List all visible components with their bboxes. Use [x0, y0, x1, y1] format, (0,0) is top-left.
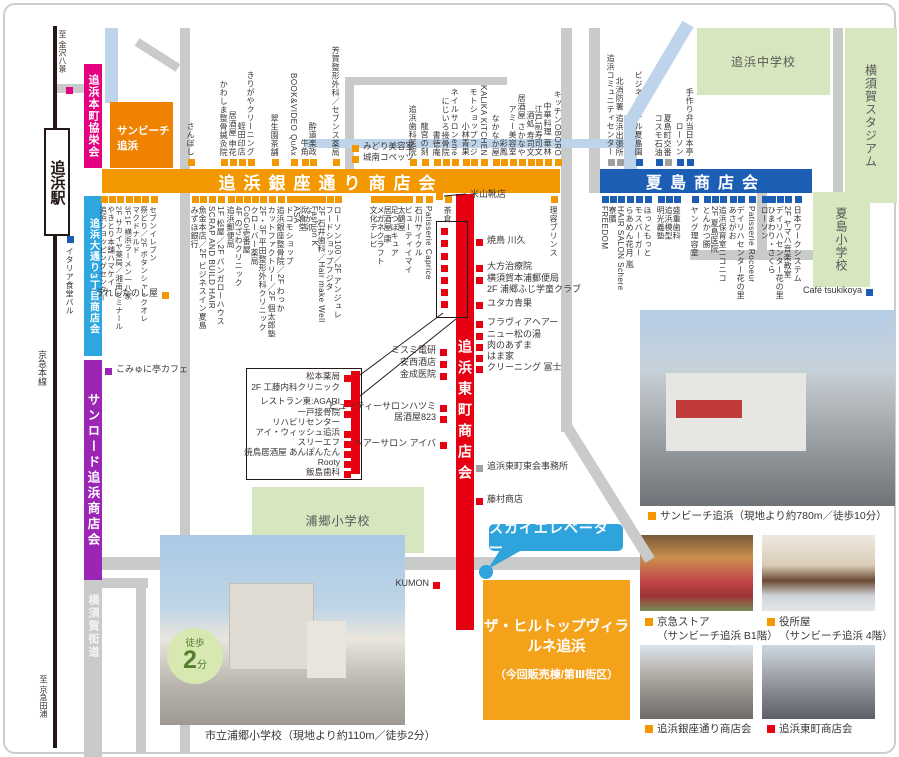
shop-label: Rooty	[318, 458, 340, 467]
shop-marker	[333, 159, 340, 166]
shop-label: コスモ石油	[654, 114, 662, 157]
shop-marker	[476, 321, 483, 328]
banner-sunroad: サンロード追浜商店会	[84, 360, 102, 580]
area-label: 浦郷小学校	[305, 512, 370, 529]
shop-marker	[627, 196, 634, 203]
shop-label: 北消防署 追浜出張所	[615, 77, 623, 156]
shop-label: にじいろ接骨院	[441, 97, 449, 157]
road	[347, 77, 507, 85]
shop-label: 酔道楽政	[308, 122, 316, 156]
shop-marker	[66, 87, 73, 94]
shop-label: 1F 松屋／2F バンガローハウス	[216, 206, 224, 326]
shop-marker	[785, 196, 792, 203]
shop-label: 4F のざわクリニック	[234, 206, 242, 287]
shop-label: 追浜銀座整骨院／2F わっか	[276, 206, 284, 313]
shop-marker	[476, 366, 483, 373]
shop-marker	[399, 196, 406, 203]
shop-marker	[720, 196, 727, 203]
shop-marker	[260, 196, 267, 203]
shop-marker	[463, 159, 470, 166]
shop-marker	[310, 159, 317, 166]
shop-label: 横須賀本浦郵便局	[487, 274, 559, 283]
photo-sunbeach-oppama	[640, 310, 895, 506]
shop-label: 魚金本店／2F ビジネスイン夏島	[198, 206, 206, 330]
shop-label: ビジネスホテル夏島園	[634, 71, 642, 156]
shop-label: Patisserie Caprice	[424, 206, 432, 280]
shop-label: 焼鳥居酒屋 あんぽんたん	[244, 448, 340, 457]
shop-marker	[692, 196, 699, 203]
shop-marker	[452, 159, 459, 166]
shop-label: 寮膳	[608, 206, 616, 223]
shop-label: デイリハセンター花の里	[775, 206, 783, 300]
shop-marker	[440, 349, 447, 356]
bullet-icon	[767, 725, 775, 733]
shop-marker	[481, 159, 488, 166]
shop-marker	[244, 196, 251, 203]
shop-label: 肉のあずま	[487, 341, 532, 350]
shop-label: 2F サカイヤ薬局／湘南ゼミナール	[115, 206, 123, 330]
road	[398, 557, 640, 570]
shop-marker	[344, 451, 351, 458]
shop-label: 2F 夏島医院	[710, 206, 718, 253]
shop-marker	[476, 344, 483, 351]
oppama-station: 追浜駅	[44, 128, 70, 236]
photo-sign-shape	[676, 400, 742, 418]
shop-marker	[440, 361, 447, 368]
shop-marker	[476, 302, 483, 309]
caption-sunbeach: サンビーチ追浜（現地より約780m／徒歩10分）	[648, 510, 887, 524]
shop-marker	[441, 289, 448, 296]
shop-marker	[422, 159, 429, 166]
shop-building-bar	[351, 371, 360, 474]
shop-marker	[248, 159, 255, 166]
area-stadium: 横須賀スタジアム	[845, 28, 897, 203]
sky-elevator-callout: スカイエレベーター	[489, 524, 623, 551]
shop-label: 日本ワークシステム	[793, 206, 801, 283]
shop-label: 中華料理 華林	[543, 102, 551, 156]
shop-marker	[344, 400, 351, 407]
shop-label: 金成医院	[400, 370, 436, 379]
shop-label: 2F 浦郷ふじ学童クラブ	[487, 285, 581, 294]
shop-label: 龍宮の刻	[420, 122, 428, 156]
shop-label: 翠生園茶舗	[270, 114, 278, 157]
shop-marker	[319, 196, 326, 203]
shop-label: 追浜東町東会事務所	[487, 462, 568, 471]
shop-label: ビューティイマイ	[404, 206, 412, 274]
shop-label: うれしたのし屋	[95, 289, 158, 298]
photo-higashicho-street	[762, 645, 875, 719]
shop-label: 祭どり／2F ボタンシャ・クオレ	[140, 206, 148, 322]
shop-marker	[441, 301, 448, 308]
shop-label: 理容プリンス	[549, 206, 557, 257]
shop-label: BOOK&VIDEO QuAx	[289, 73, 297, 156]
shop-label: 蛭田印店	[237, 122, 245, 156]
shop-label: ミスミ電研	[391, 346, 436, 355]
shop-marker	[658, 196, 665, 203]
shop-marker	[440, 442, 447, 449]
road	[589, 28, 600, 193]
shop-label: ネイルサロンeme	[450, 88, 458, 156]
shop-marker	[200, 196, 207, 203]
shop-label: さんぼし	[186, 122, 194, 156]
shop-marker	[476, 465, 483, 472]
shop-label: アイ・ウィッシュ追浜	[255, 428, 340, 437]
shop-marker	[252, 196, 259, 203]
shop-marker	[327, 196, 334, 203]
property-name: ザ・ヒルトップヴィラルネ追浜	[484, 618, 629, 657]
shop-marker	[536, 159, 543, 166]
road	[102, 557, 160, 570]
shop-marker	[656, 159, 663, 166]
shop-label: 3F1F 横浜ラーメン一八家	[124, 206, 132, 300]
shop-label: キッチンOBORO	[553, 90, 561, 156]
area-label: 横須賀スタジアム	[863, 64, 880, 168]
shop-marker	[645, 196, 652, 203]
shop-label: 盛重歯科	[672, 206, 680, 240]
photo-keikyu-store	[640, 535, 753, 611]
shop-label: はま家	[487, 352, 514, 361]
property-note: （今回販売棟/第Ⅲ街区）	[495, 666, 618, 682]
shop-label: みずほ銀行	[190, 206, 198, 249]
shop-label: イタリア食堂バル	[65, 247, 73, 315]
shop-label: 明光義塾	[656, 206, 664, 240]
shop-label: 一戸接骨院	[297, 408, 340, 417]
shop-label: 安西酒店	[400, 358, 436, 367]
shop-marker	[636, 196, 643, 203]
shop-label: SCRAP AND BUILD HAIR	[207, 206, 215, 309]
shop-label: モスバーガー	[634, 206, 642, 257]
shop-label: ローソン	[675, 122, 683, 156]
shop-label: みどり美容室	[363, 142, 414, 151]
shop-marker	[192, 196, 199, 203]
shop-marker	[221, 159, 228, 166]
shop-marker	[795, 196, 802, 203]
shop-label: かわしま整骨鍼灸院	[219, 80, 227, 157]
shop-label: 芳賀整形外科／セブンス薬局	[331, 46, 339, 157]
shop-marker	[769, 196, 776, 203]
caption-ginza-street: 追浜銀座通り商店会	[645, 723, 752, 737]
shop-marker	[371, 196, 378, 203]
shop-label: やきとり本舗ハマケイ	[107, 206, 115, 286]
shop-label: マクドナルド	[132, 206, 140, 254]
shop-label: モトショップフジ	[469, 88, 477, 156]
shop-label: 彩鳳	[499, 139, 507, 156]
shop-label: 居酒屋 申花	[228, 111, 236, 156]
road	[561, 192, 572, 432]
shop-marker	[617, 159, 624, 166]
shop-marker	[476, 277, 483, 284]
banner-natsushima: 夏島商店会	[600, 169, 812, 193]
shop-label: なかなか屋	[491, 114, 499, 157]
shop-marker	[666, 196, 673, 203]
bullet-icon	[767, 618, 775, 626]
shop-marker	[278, 196, 285, 203]
shop-marker	[445, 196, 452, 203]
shop-label: らあめん花月 嵐	[625, 206, 633, 268]
shop-marker	[287, 196, 294, 203]
shop-label: リハビリセンター	[272, 418, 340, 427]
shop-label: カットファクトリー／2F 個太郎塾	[267, 206, 275, 338]
caption-higashicho-street: 追浜東町商店会	[767, 723, 853, 737]
shop-label: KALiKA KiTCHEN	[479, 85, 487, 156]
shop-marker	[610, 196, 617, 203]
shop-marker	[335, 196, 342, 203]
shop-label: 米山靴店	[470, 190, 506, 199]
shop-marker	[476, 239, 483, 246]
bullet-icon	[648, 512, 656, 520]
water-road	[105, 28, 118, 103]
shop-label: 藤村商店	[487, 495, 523, 504]
shop-label: CoCo壱番屋	[242, 206, 250, 254]
shop-marker	[434, 159, 441, 166]
shop-label: 2F 工藤内科クリニック	[251, 383, 340, 392]
bullet-icon	[645, 618, 653, 626]
shop-label: とんかつ勝	[702, 206, 710, 249]
shop-marker	[109, 196, 116, 203]
shop-marker	[677, 159, 684, 166]
shop-label: ニュー松の湯	[487, 330, 541, 339]
shop-label: 飯島歯科	[306, 468, 340, 477]
shop-marker	[406, 196, 413, 203]
shop-label: 城南コペッツ	[363, 153, 414, 162]
shop-marker	[441, 240, 448, 247]
shop-marker	[687, 159, 694, 166]
shop-marker	[218, 196, 225, 203]
shop-label: KUMON	[396, 579, 430, 588]
shop-marker	[378, 196, 385, 203]
shop-marker	[101, 196, 108, 203]
shop-marker	[302, 159, 309, 166]
shop-marker	[738, 196, 745, 203]
shop-label: セブンイレブン	[149, 206, 157, 262]
shop-marker	[209, 196, 216, 203]
road	[561, 28, 572, 193]
rail-dest-north: 至 金沢八景	[57, 30, 68, 72]
shop-label: 牛角	[300, 139, 308, 156]
shop-marker	[443, 159, 450, 166]
caption-urago-elementary: 市立浦郷小学校（現地より約110m／徒歩2分）	[205, 729, 436, 743]
shop-marker	[151, 196, 158, 203]
shop-marker	[441, 228, 448, 235]
oppama-area-map: 至 金沢八景 追浜駅 京急本線 至 京急田浦 追浜中学校 横須賀スタジアム 夏島…	[0, 0, 899, 757]
shop-label: デイリハセンター花の里	[736, 206, 744, 300]
photo-ginza-street	[640, 645, 753, 719]
shop-marker	[105, 368, 112, 375]
walk-time-badge: 徒歩 2分	[167, 628, 223, 684]
shop-label: Café tsukikoya	[803, 286, 862, 295]
shop-marker	[528, 159, 535, 166]
shop-label: あさがお	[728, 206, 736, 240]
shop-label: クリーニング 冨士	[487, 363, 562, 372]
shop-label: 手作り弁当日本亭	[685, 88, 693, 156]
shop-marker	[493, 159, 500, 166]
banner-honcho-kyoeikai: 追浜本町協栄会	[84, 64, 102, 168]
shop-marker	[501, 159, 508, 166]
photo-gate-shape	[307, 621, 346, 678]
shop-label: 2F 石井歯科／Hair make Well	[317, 206, 325, 323]
shop-marker	[665, 159, 672, 166]
caption-keikyu-store: 京急ストア （サンビーチ追浜 B1階）	[645, 616, 778, 643]
shop-marker	[476, 333, 483, 340]
shop-marker	[476, 265, 483, 272]
shop-label: フードショップフジタ	[325, 206, 333, 291]
shop-marker	[712, 196, 719, 203]
shop-label: FREEDOM	[600, 206, 608, 250]
shop-marker	[344, 471, 351, 478]
caption-yakushoya: 役所屋 （サンビーチ追浜 4階）	[767, 616, 893, 643]
road-yokosuka-kaido: 横須賀街道	[84, 580, 102, 757]
shop-marker	[117, 196, 124, 203]
shop-marker	[436, 193, 443, 200]
shop-label: 茶倉	[443, 206, 451, 223]
shop-marker	[441, 265, 448, 272]
shop-marker	[674, 196, 681, 203]
shop-marker	[239, 159, 246, 166]
shop-label: 追浜模型	[664, 206, 672, 240]
shop-label: スリーエフ	[297, 438, 340, 447]
bullet-icon	[645, 725, 653, 733]
area-natsushima-elem: 夏島小学校	[813, 192, 870, 287]
shop-marker	[519, 159, 526, 166]
shop-label: ほっともっと	[643, 206, 651, 257]
shop-marker	[416, 196, 423, 203]
shop-marker	[236, 196, 243, 203]
shop-marker	[618, 196, 625, 203]
shop-marker	[636, 159, 643, 166]
shop-label: 居酒屋 さかなや	[517, 94, 525, 156]
shop-marker	[352, 145, 359, 152]
shop-label: ユタカ青果	[487, 299, 532, 308]
shop-marker	[730, 196, 737, 203]
shop-marker	[476, 355, 483, 362]
property-block: ザ・ヒルトップヴィラルネ追浜 （今回販売棟/第Ⅲ街区）	[483, 580, 630, 720]
shop-label: ヘアーサロン アイバ	[354, 439, 436, 448]
shop-marker	[352, 156, 359, 163]
shop-marker	[551, 196, 558, 203]
shop-marker	[230, 159, 237, 166]
shop-label: 夏島町交番	[663, 114, 671, 157]
shop-label: 追浜コミュニティセンター	[606, 54, 614, 156]
shop-marker	[162, 292, 169, 299]
shop-marker	[272, 159, 279, 166]
shop-marker	[608, 159, 615, 166]
shop-label: 書徳庵	[432, 131, 440, 157]
shop-marker	[602, 196, 609, 203]
photo-building-shape	[229, 583, 314, 671]
shop-label: ひまわり・さくら	[767, 206, 775, 274]
shop-marker	[426, 196, 433, 203]
shop-label: 大方治療院	[487, 262, 532, 271]
shop-label: ヤング理容室	[690, 206, 698, 257]
shop-marker	[866, 289, 873, 296]
shop-marker	[762, 196, 769, 203]
shop-label: アミー美容室	[508, 105, 516, 156]
rail-line-name: 京急本線	[36, 350, 49, 386]
shop-marker	[67, 236, 74, 243]
area-label: 追浜中学校	[731, 53, 796, 70]
shop-marker	[440, 405, 447, 412]
shop-label: フラヴィアヘアー	[487, 318, 558, 327]
road	[136, 578, 146, 754]
shop-marker	[344, 441, 351, 448]
shop-marker	[228, 196, 235, 203]
shop-label: 焼鳥 川久	[487, 236, 526, 245]
shop-marker	[545, 159, 552, 166]
shop-marker	[441, 253, 448, 260]
shop-label: 江戸前寿司文	[534, 105, 542, 156]
shop-label: クローバー薬局	[250, 206, 258, 266]
shop-label: Patisserie Rocoeur	[747, 206, 755, 283]
shop-label: 石川サイクル	[414, 206, 422, 257]
shop-marker	[704, 196, 711, 203]
shop-marker	[749, 196, 756, 203]
shop-marker	[440, 373, 447, 380]
sunbeach-label: サンビーチ追浜	[110, 102, 170, 154]
shop-marker	[385, 196, 392, 203]
shop-marker	[433, 582, 440, 589]
shop-label: 酒処 寿司文	[526, 111, 534, 156]
area-label: 夏島小学校	[833, 207, 850, 272]
shop-marker	[344, 461, 351, 468]
shop-marker	[510, 159, 517, 166]
shop-label: こみゅに亭カフェ	[116, 365, 188, 374]
shop-marker	[344, 431, 351, 438]
shop-marker	[188, 159, 195, 166]
shop-marker	[142, 196, 149, 203]
shop-marker	[291, 159, 298, 166]
shop-label: HAIR SALON Schere	[616, 206, 624, 291]
shop-label: 追浜保育室ニコニコ	[718, 206, 726, 283]
shop-marker	[269, 196, 276, 203]
shop-marker	[344, 411, 351, 418]
shop-marker	[344, 375, 351, 382]
shop-label: 2F ヤマハ音楽教室	[783, 206, 791, 279]
rail-dest-south: 至 京急田浦	[38, 675, 49, 717]
shop-marker	[392, 196, 399, 203]
shop-marker	[441, 277, 448, 284]
shop-marker	[777, 196, 784, 203]
shop-marker	[312, 196, 319, 203]
photo-yakushoya	[762, 535, 875, 611]
shop-label: きりがやクリーニング	[246, 71, 254, 156]
shop-label: レストラン東:AGARI	[260, 397, 340, 406]
shop-label: 居酒屋823	[394, 413, 436, 422]
shop-label: 2F・3F 平田整形外科クリニック	[258, 206, 266, 331]
shop-label: ローソン100／2F アンジュレ	[333, 206, 341, 319]
shop-marker	[555, 159, 562, 166]
shop-label: 松本薬局	[306, 372, 340, 381]
shop-marker	[134, 196, 141, 203]
shop-marker	[440, 416, 447, 423]
shop-marker	[471, 159, 478, 166]
banner-sunbeach-oppama: サンビーチ追浜	[110, 102, 173, 168]
shop-label: 追浜郵便局	[226, 206, 234, 249]
area-junior-high: 追浜中学校	[697, 28, 830, 95]
shop-marker	[126, 196, 133, 203]
shop-marker	[476, 498, 483, 505]
shop-label: 小林青果	[461, 122, 469, 156]
